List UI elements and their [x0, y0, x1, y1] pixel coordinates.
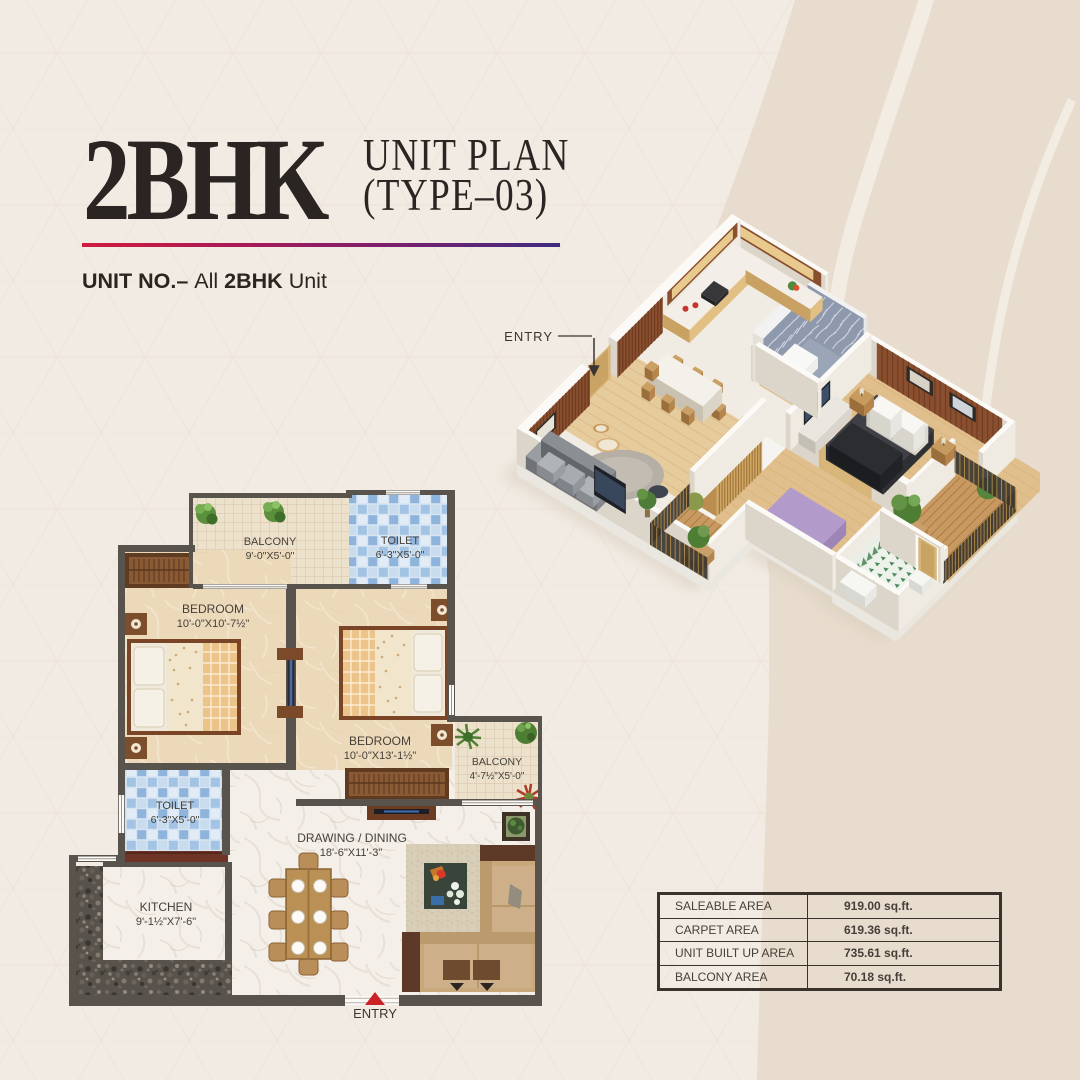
svg-text:6'-3"X5'-0": 6'-3"X5'-0" [151, 814, 200, 826]
svg-text:6'-3"X5'-0": 6'-3"X5'-0" [376, 549, 425, 561]
svg-text:4'-7½"X5'-0": 4'-7½"X5'-0" [470, 771, 525, 782]
svg-text:TOILET: TOILET [381, 535, 420, 547]
svg-text:10'-0"X10'-7½": 10'-0"X10'-7½" [177, 618, 250, 630]
svg-text:ENTRY: ENTRY [504, 329, 553, 344]
svg-text:9'-1½"X7'-6": 9'-1½"X7'-6" [136, 916, 196, 928]
svg-text:ENTRY: ENTRY [353, 1006, 397, 1021]
svg-text:18'-6"X11'-3": 18'-6"X11'-3" [320, 847, 383, 859]
svg-text:BALCONY: BALCONY [472, 756, 522, 768]
svg-text:TOILET: TOILET [156, 800, 195, 812]
svg-text:BEDROOM: BEDROOM [182, 602, 244, 616]
svg-text:BALCONY: BALCONY [244, 536, 297, 548]
svg-text:10'-0"X13'-1½": 10'-0"X13'-1½" [344, 750, 417, 762]
svg-text:BEDROOM: BEDROOM [349, 734, 411, 748]
svg-text:DRAWING / DINING: DRAWING / DINING [297, 831, 407, 845]
svg-text:KITCHEN: KITCHEN [140, 900, 193, 914]
svg-text:9'-0"X5'-0": 9'-0"X5'-0" [246, 550, 295, 562]
